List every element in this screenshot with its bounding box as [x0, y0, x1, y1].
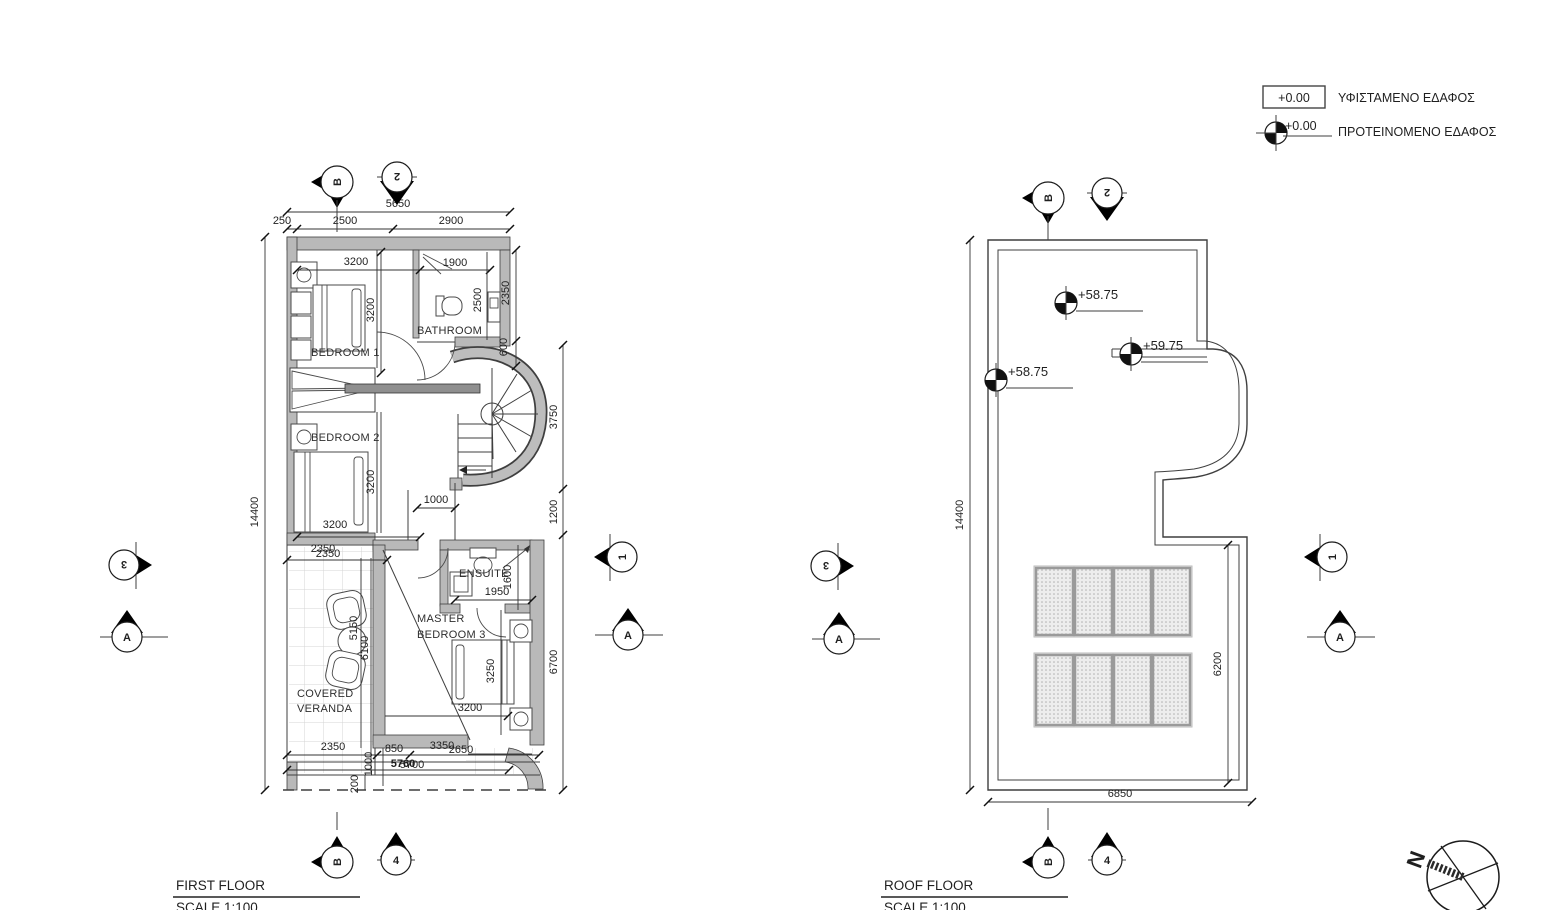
legend: +0.00 ΥΦΙΣΤΑΜΕΝΟ ΕΔΑΦΟΣ +0.00 ΠΡΟΤΕΙΝΟΜΕ…	[1256, 86, 1497, 151]
svg-text:2350: 2350	[316, 548, 340, 560]
rf-section-marker-A-right: A	[1307, 610, 1375, 652]
svg-text:3: 3	[121, 558, 127, 570]
roof-floor-title: ROOF FLOOR	[884, 878, 974, 893]
room-label-master-1: MASTER	[417, 613, 465, 625]
svg-text:A: A	[1336, 632, 1344, 644]
section-marker-1-right: 1	[594, 534, 637, 581]
svg-text:2650: 2650	[449, 744, 473, 756]
rf-section-marker-1-right: 1	[1304, 534, 1347, 581]
svg-text:6700: 6700	[548, 650, 560, 674]
svg-text:+59.75: +59.75	[1143, 338, 1183, 353]
room-label-bedroom2: BEDROOM 2	[311, 432, 380, 444]
room-label-veranda-1: COVERED	[297, 688, 354, 700]
room-label-bathroom: BATHROOM	[417, 325, 482, 337]
svg-text:2: 2	[394, 170, 400, 182]
spiral-stair	[452, 353, 541, 481]
svg-text:3200: 3200	[323, 519, 347, 531]
bedroom1-furniture	[291, 262, 365, 360]
floor-plan-sheet: +0.00 ΥΦΙΣΤΑΜΕΝΟ ΕΔΑΦΟΣ +0.00 ΠΡΟΤΕΙΝΟΜΕ…	[0, 0, 1567, 910]
proposed-ground-value: +0.00	[1285, 119, 1317, 133]
svg-text:6850: 6850	[1108, 788, 1132, 800]
svg-text:14400: 14400	[249, 497, 261, 528]
svg-text:1950: 1950	[485, 586, 509, 598]
svg-text:200: 200	[349, 775, 361, 793]
stair-direction-arrow	[459, 466, 467, 474]
bathroom-fixtures	[436, 292, 500, 322]
svg-text:1000: 1000	[363, 752, 375, 776]
rf-section-marker-B-bottom: B	[1022, 808, 1064, 878]
proposed-ground-label: ΠΡΟΤΕΙΝΟΜΕΝΟ ΕΔΑΦΟΣ	[1338, 125, 1497, 139]
svg-text:5700: 5700	[400, 759, 424, 771]
svg-text:B: B	[332, 858, 344, 866]
svg-text:3200: 3200	[365, 470, 377, 494]
svg-text:A: A	[123, 632, 131, 644]
svg-text:A: A	[624, 630, 632, 642]
svg-text:2500: 2500	[333, 215, 357, 227]
svg-text:1000: 1000	[424, 494, 448, 506]
svg-text:4: 4	[1104, 855, 1111, 867]
drawing-svg: +0.00 ΥΦΙΣΤΑΜΕΝΟ ΕΔΑΦΟΣ +0.00 ΠΡΟΤΕΙΝΟΜΕ…	[0, 0, 1567, 910]
svg-text:3750: 3750	[548, 405, 560, 429]
section-marker-B-bottom: B	[311, 812, 353, 878]
svg-text:14400: 14400	[954, 500, 966, 531]
svg-text:B: B	[332, 178, 344, 186]
existing-ground-label: ΥΦΙΣΤΑΜΕΝΟ ΕΔΑΦΟΣ	[1338, 91, 1475, 105]
svg-text:2350: 2350	[500, 281, 512, 305]
svg-text:A: A	[835, 634, 843, 646]
section-marker-A-right: A	[595, 608, 663, 650]
section-marker-4-bottom: 4	[377, 832, 415, 875]
section-marker-A-left: A	[100, 610, 168, 652]
svg-text:B: B	[1043, 858, 1055, 866]
first-floor-title: FIRST FLOOR	[176, 878, 265, 893]
rf-section-marker-2-top: 2	[1087, 178, 1127, 221]
section-marker-2-top: 2	[377, 162, 417, 205]
first-floor-scale: SCALE 1:100	[176, 900, 258, 910]
svg-text:1: 1	[617, 554, 629, 560]
svg-text:600: 600	[498, 338, 510, 356]
north-label: N	[1401, 848, 1430, 871]
svg-text:+58.75: +58.75	[1078, 287, 1118, 302]
svg-text:3250: 3250	[485, 659, 497, 683]
svg-text:250: 250	[273, 215, 291, 227]
room-label-bedroom1: BEDROOM 1	[311, 347, 380, 359]
svg-text:2350: 2350	[321, 741, 345, 753]
section-marker-3-left: 3	[109, 542, 152, 589]
svg-text:+58.75: +58.75	[1008, 364, 1048, 379]
svg-text:3200: 3200	[344, 256, 368, 268]
svg-text:1: 1	[1327, 554, 1339, 560]
svg-text:2500: 2500	[472, 288, 484, 312]
north-arrow-icon: N	[1401, 841, 1499, 910]
roof-floor-plan: +58.75 +59.75 +58.75 14400	[811, 178, 1375, 910]
svg-text:1900: 1900	[443, 257, 467, 269]
svg-text:3200: 3200	[458, 702, 482, 714]
svg-text:2900: 2900	[439, 215, 463, 227]
room-label-master-2: BEDROOM 3	[417, 629, 486, 641]
svg-text:1200: 1200	[548, 500, 560, 524]
roof-floor-scale: SCALE 1:100	[884, 900, 966, 910]
svg-text:3: 3	[823, 559, 829, 571]
level-marker-icon	[1256, 115, 1287, 151]
svg-text:6100: 6100	[359, 636, 371, 660]
room-label-veranda-2: VERANDA	[297, 703, 353, 715]
svg-text:B: B	[1043, 194, 1055, 202]
svg-text:6200: 6200	[1212, 652, 1224, 676]
svg-text:3200: 3200	[365, 298, 377, 322]
rf-section-marker-A-left: A	[812, 612, 880, 654]
beam	[345, 384, 480, 393]
svg-text:850: 850	[385, 743, 403, 755]
existing-ground-value: +0.00	[1278, 91, 1310, 105]
rf-section-marker-B-top: B	[1022, 182, 1064, 240]
svg-text:4: 4	[393, 855, 400, 867]
svg-text:2: 2	[1104, 186, 1110, 198]
rf-section-marker-3-left: 3	[811, 543, 854, 590]
rf-section-marker-4-bottom: 4	[1088, 832, 1126, 875]
first-floor-plan: BEDROOM 1 BEDROOM 2 BATHROOM ENSUITE MAS…	[100, 162, 663, 910]
